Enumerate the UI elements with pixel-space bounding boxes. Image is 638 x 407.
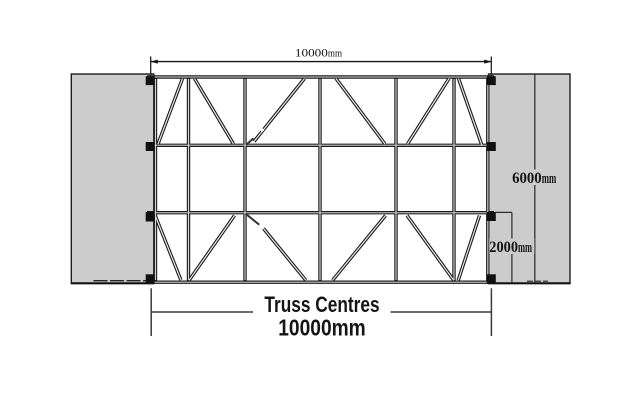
svg-text:6000mm: 6000mm	[512, 170, 556, 187]
svg-text:10000mm: 10000mm	[278, 314, 366, 340]
svg-text:Truss Centres: Truss Centres	[264, 292, 379, 317]
svg-text:10000mm: 10000mm	[295, 48, 342, 60]
svg-text:2000mm: 2000mm	[489, 239, 532, 256]
